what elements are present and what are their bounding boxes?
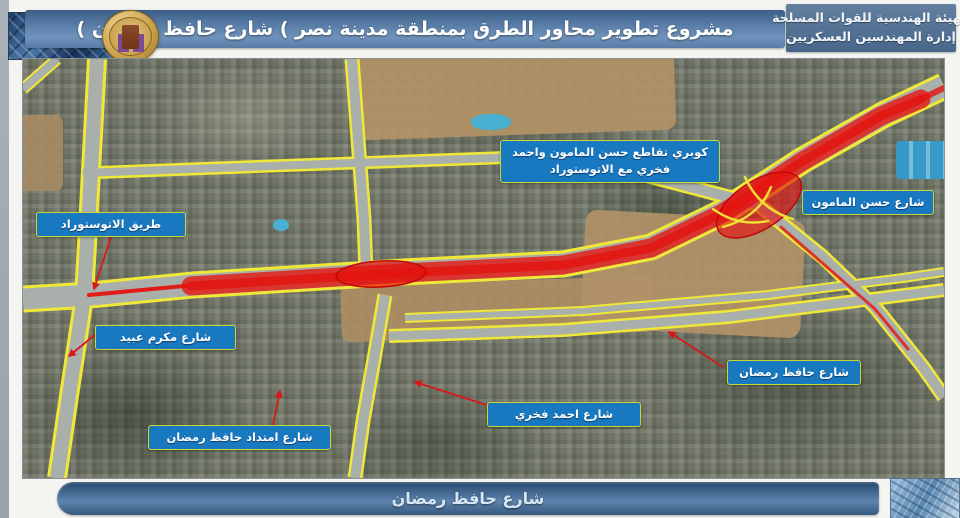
- footer-street-title: شارع حافظ رمضان: [392, 489, 545, 508]
- seal-emblem: [122, 25, 139, 49]
- roadbed: [355, 295, 385, 478]
- map-label-autostrad-road: طريق الاتوستوراد: [36, 212, 186, 237]
- page-title: مشروع تطوير محاور الطرق بمنطقة مدينة نصر…: [77, 18, 734, 40]
- slide: مشروع تطوير محاور الطرق بمنطقة مدينة نصر…: [0, 0, 960, 518]
- map-label-mamoun-fakhry-bridge: كوبري تقاطع حسن المامون واحمد فخري مع ال…: [500, 140, 720, 183]
- map-label-hafez-extension-street: شارع امتداد حافظ رمضان: [148, 425, 331, 450]
- map-label-makram-ebeid-street: شارع مكرم عبيد: [95, 325, 236, 350]
- engineering-authority-seal-icon: [102, 10, 159, 63]
- satellite-map: طريق الاتوستوراد كوبري تقاطع حسن المامون…: [22, 58, 945, 479]
- leader-hafez-ramadan: [669, 332, 723, 367]
- footer-title-bar: شارع حافظ رمضان: [57, 482, 879, 515]
- roads-overlay-svg: [23, 59, 944, 478]
- roadbed: [23, 59, 57, 89]
- facade-photo-thumbnail-bottom: [890, 478, 960, 518]
- left-edge-strip: [0, 0, 9, 518]
- leader-hafez-extension: [273, 391, 280, 425]
- organization-name: الهيئة الهندسية للقوات المسلحة: [772, 10, 960, 27]
- organization-block: الهيئة الهندسية للقوات المسلحة إدارة الم…: [786, 4, 956, 52]
- map-label-hassan-mamoun-street: شارع حسن المامون: [802, 190, 934, 215]
- leader-ahmed-fakhry: [415, 382, 493, 407]
- map-label-ahmed-fakhry-street: شارع احمد فخري: [487, 402, 641, 427]
- map-label-hafez-ramadan-street: شارع حافظ رمضان: [727, 360, 861, 385]
- organization-department: إدارة المهندسين العسكريين: [786, 29, 956, 46]
